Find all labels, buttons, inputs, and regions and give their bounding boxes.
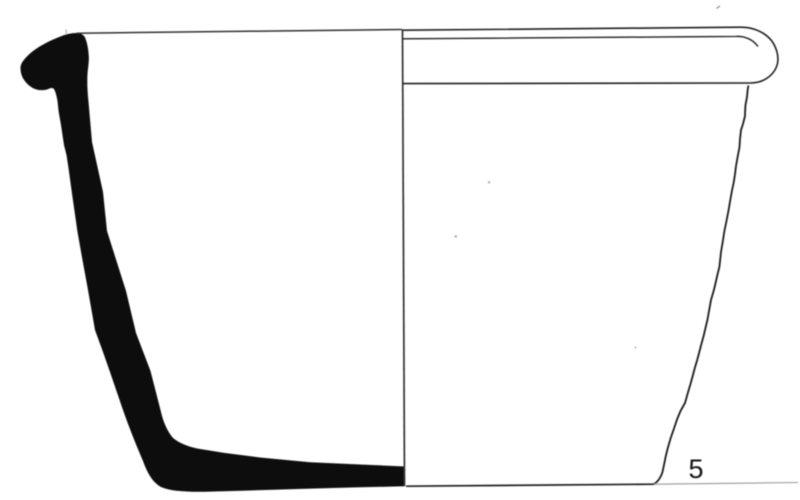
- svg-text:5: 5: [689, 454, 704, 484]
